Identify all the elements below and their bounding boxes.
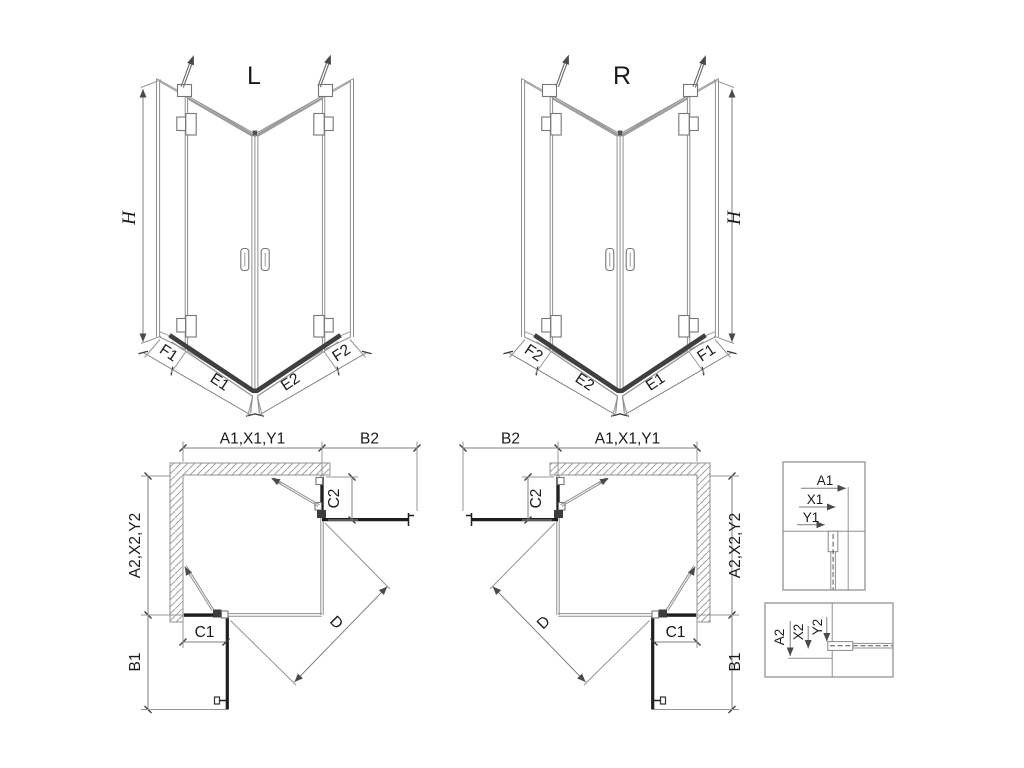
detail-label-x2: X2 (791, 624, 806, 641)
wall-section (170, 463, 330, 622)
dim-label-b2: B2 (501, 431, 520, 448)
detail-label-y2: Y2 (810, 619, 825, 636)
dim-label-c2: C2 (326, 489, 343, 509)
height-dim-label: H (724, 210, 745, 226)
door-swing-arrow (691, 54, 709, 88)
iso-view-right: R H F2 E2 E1 F1 (508, 53, 745, 416)
dim-label-c1: C1 (195, 624, 215, 641)
dim-label-a1x1y1: A1,X1,Y1 (595, 431, 661, 448)
dim-label-a2x2y2: A2,X2,Y2 (727, 513, 744, 579)
detail-view-profile-bottom: A2 X2 Y2 (765, 603, 893, 677)
height-dim-label: H (119, 210, 140, 226)
door-swing-arrow (316, 53, 334, 87)
wall-section (550, 463, 710, 622)
dim-label-a1x1y1: A1,X1,Y1 (220, 431, 286, 448)
plan-view-left: A1,X1,Y1 B2 C2 A2,X2,Y2 C1 B1 D (127, 431, 417, 710)
dim-label-d: D (326, 613, 346, 633)
iso-enclosure-left (141, 79, 367, 417)
shower-enclosure-technical-drawing: L H F1 E1 E2 F2 R H F2 E2 E1 F1 A1,X1,Y1… (0, 0, 1024, 768)
dim-label-b1: B1 (727, 653, 744, 672)
plan-view-right: B2 A1,X1,Y1 C2 A2,X2,Y2 C1 B1 D (463, 431, 744, 710)
dim-label-b1: B1 (127, 653, 144, 672)
detail-label-a2: A2 (772, 629, 787, 646)
dim-label-c1: C1 (666, 624, 686, 641)
door-swing-arrow (554, 53, 572, 87)
drawing-canvas: L H F1 E1 E2 F2 R H F2 E2 E1 F1 A1,X1,Y1… (0, 0, 1024, 768)
detail-view-profile-top: A1 X1 Y1 (783, 462, 865, 590)
dim-label-a2x2y2: A2,X2,Y2 (127, 513, 144, 579)
dim-label-b2: B2 (360, 431, 379, 448)
dim-label-d: D (534, 613, 554, 633)
iso-view-left: L H F1 E1 E2 F2 (119, 53, 367, 416)
variant-label-right: R (613, 62, 631, 90)
detail-label-a1: A1 (817, 473, 834, 488)
variant-label-left: L (247, 62, 261, 90)
detail-label-y1: Y1 (803, 510, 820, 525)
dim-label-c2: C2 (528, 489, 545, 509)
detail-label-x1: X1 (807, 492, 824, 507)
door-swing-arrow (179, 54, 197, 88)
iso-enclosure-right (508, 79, 734, 417)
